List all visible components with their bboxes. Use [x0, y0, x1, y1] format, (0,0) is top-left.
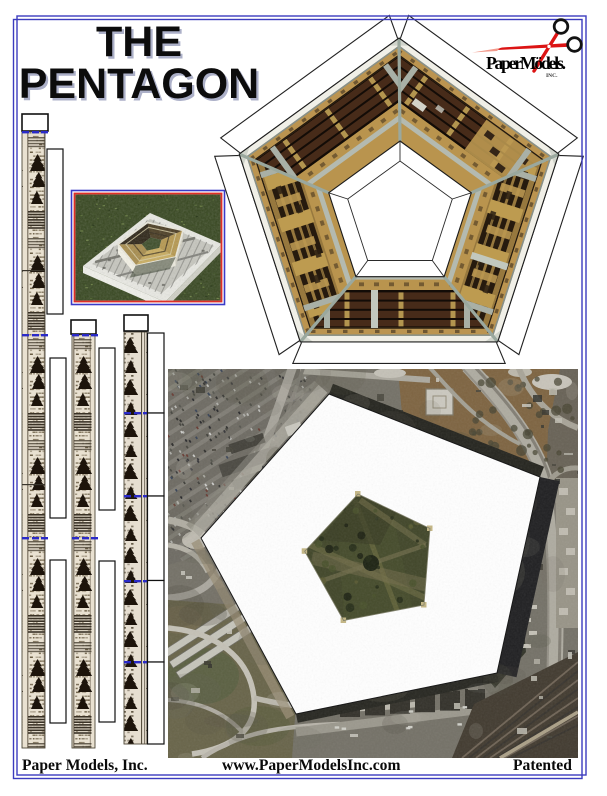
- svg-text:PaperMödels.: PaperMödels.: [486, 53, 566, 73]
- svg-text:INC.: INC.: [546, 73, 558, 79]
